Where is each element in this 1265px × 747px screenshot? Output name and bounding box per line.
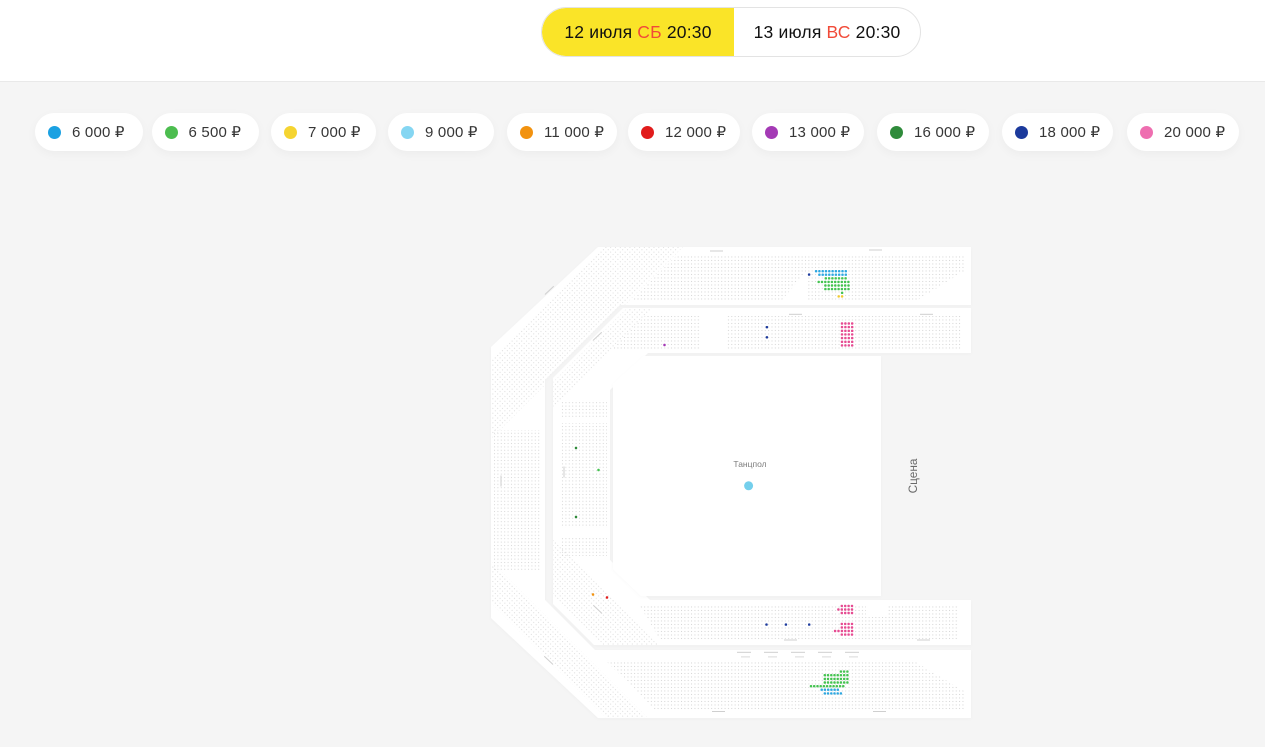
svg-text:Сцена: Сцена [906, 458, 920, 493]
svg-text:Танцпол: Танцпол [733, 459, 766, 469]
